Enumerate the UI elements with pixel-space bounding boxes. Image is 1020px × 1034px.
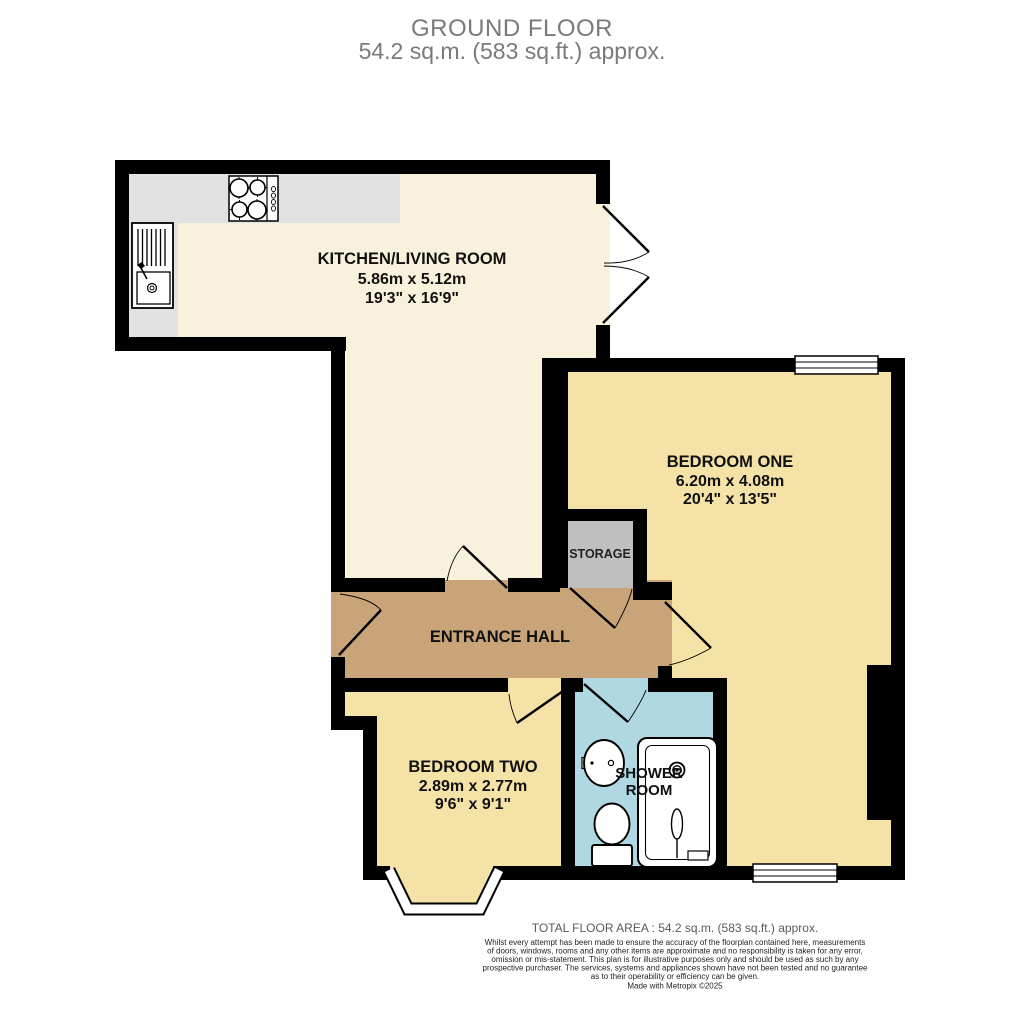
- bedroom-one-imperial-dims: 20'4" x 13'5": [683, 491, 777, 508]
- storage-label: STORAGE: [569, 547, 631, 561]
- shower-room-label-line1: SHOWER: [615, 765, 683, 782]
- metropix-credit: Made with Metropix ©2025: [627, 982, 723, 991]
- bedroom-one-label: BEDROOM ONE: [667, 453, 794, 471]
- floorplan-page: KITCHEN/LIVING ROOM 5.86m x 5.12m 19'3" …: [0, 0, 1020, 1034]
- bedroom-two-imperial-dims: 9'6" x 9'1": [435, 796, 511, 813]
- toilet-symbol: [592, 804, 632, 867]
- floorplan-canvas: KITCHEN/LIVING ROOM 5.86m x 5.12m 19'3" …: [0, 0, 1020, 1034]
- french-door-opening-floor: [596, 204, 610, 325]
- bedroom-one-bottom-window: [753, 864, 837, 882]
- kitchen-room-label: KITCHEN/LIVING ROOM: [318, 250, 507, 268]
- bedroom-one-metric-dims: 6.20m x 4.08m: [676, 473, 785, 490]
- hob-symbol: [228, 176, 278, 221]
- kitchen-metric-dims: 5.86m x 5.12m: [358, 271, 467, 288]
- total-floor-area: TOTAL FLOOR AREA : 54.2 sq.m. (583 sq.ft…: [532, 921, 819, 935]
- kitchen-sink-symbol: [132, 223, 173, 308]
- bedroom-two-metric-dims: 2.89m x 2.77m: [419, 778, 528, 795]
- disclaimer-line-5: as to their operability or efficiency ca…: [591, 972, 759, 981]
- kitchen-imperial-dims: 19'3" x 16'9": [365, 290, 459, 307]
- bedroom-two-label: BEDROOM TWO: [408, 758, 537, 776]
- chimney-breast: [867, 665, 905, 820]
- shower-enclosure-symbol: [638, 738, 717, 867]
- entrance-hall-label: ENTRANCE HALL: [430, 628, 570, 646]
- room-floors: [129, 174, 898, 905]
- bedroom-one-top-window: [795, 356, 878, 374]
- kitchen-living-room-floor: [129, 174, 596, 586]
- shower-room-label-line2: ROOM: [626, 782, 673, 799]
- page-subtitle: 54.2 sq.m. (583 sq.ft.) approx.: [359, 38, 666, 64]
